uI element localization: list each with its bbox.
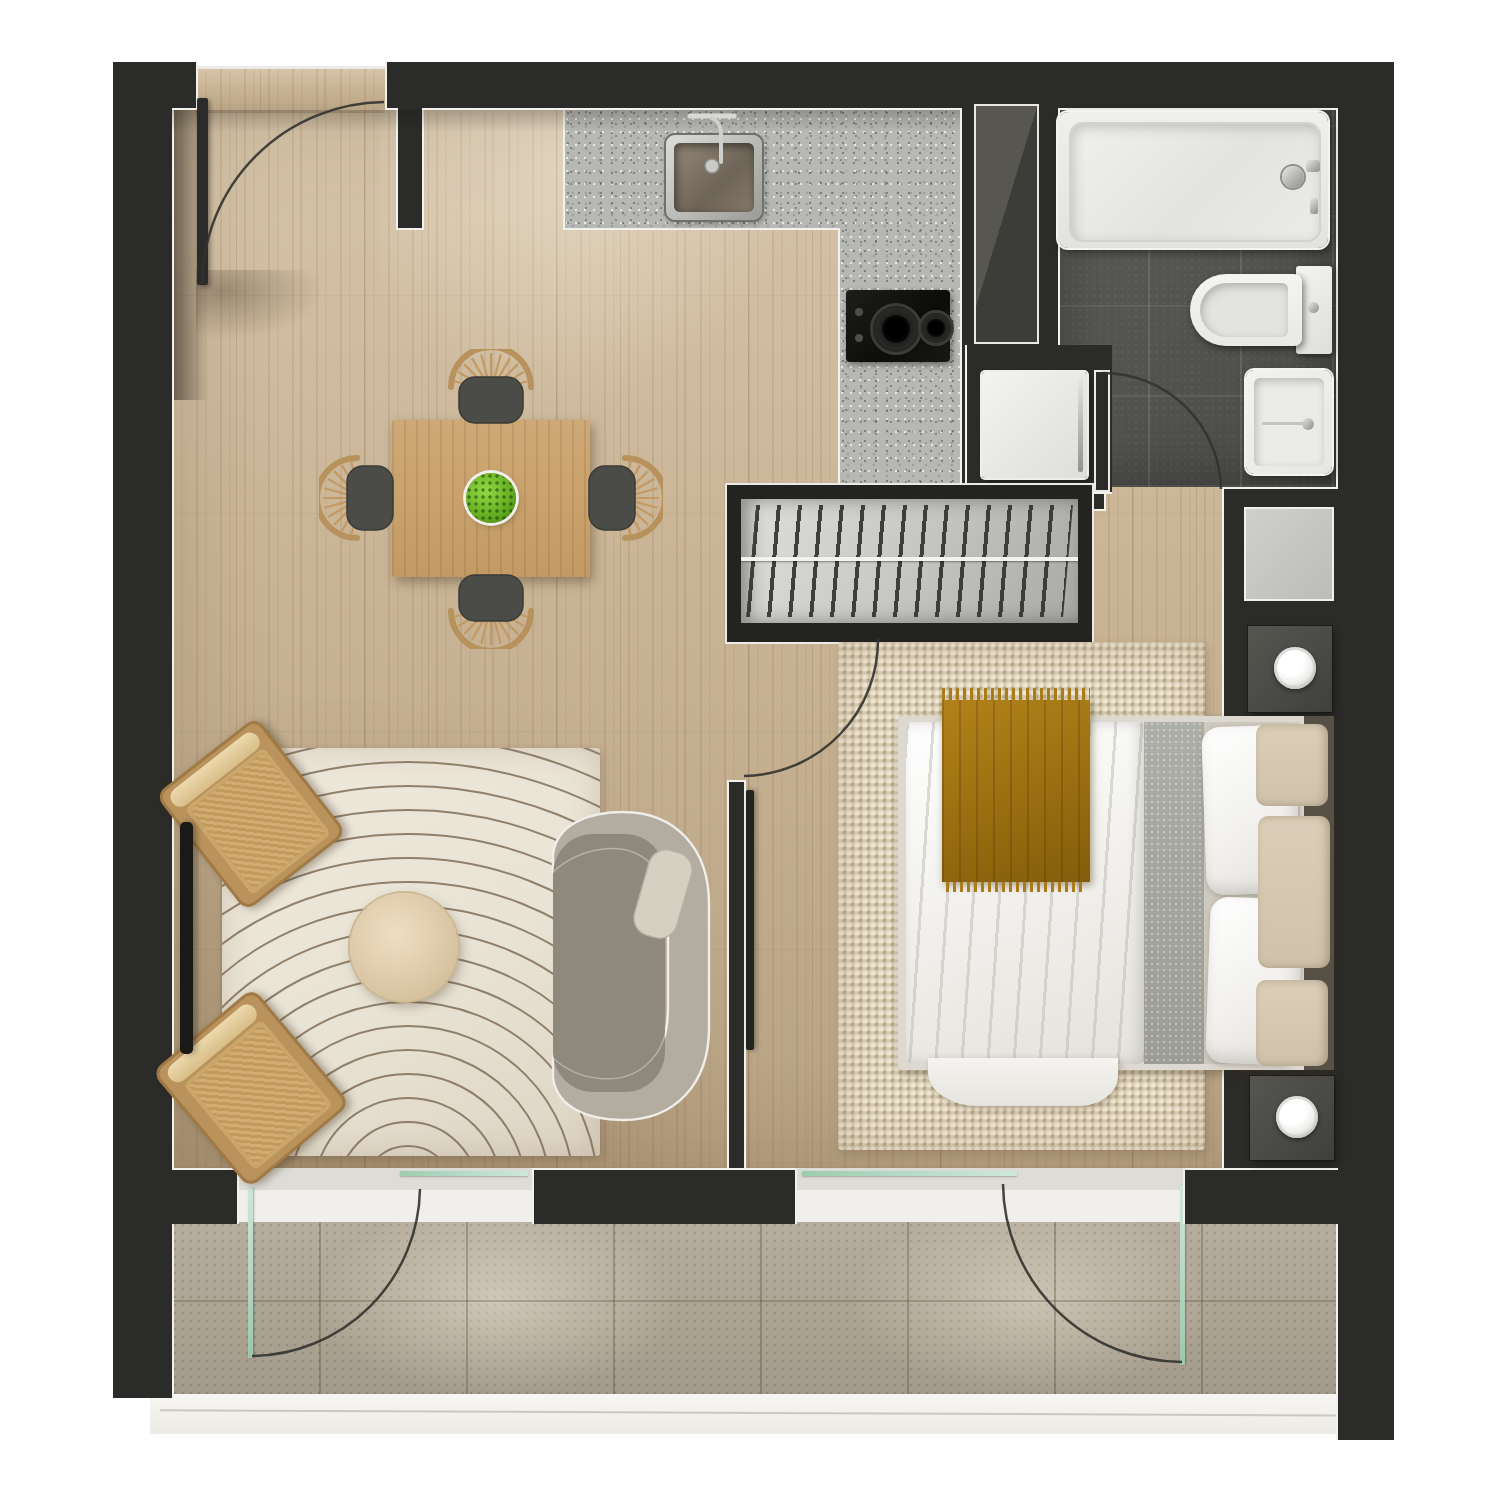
headboard-cushion-2 xyxy=(1258,816,1330,968)
lamp-top-icon xyxy=(1274,647,1316,689)
throw-fringe-bottom xyxy=(946,882,1086,892)
coffee-table xyxy=(350,893,458,1001)
tub-handle-icon xyxy=(1310,198,1318,214)
plant-centerpiece xyxy=(466,473,516,523)
glass-fixed-bedroom xyxy=(802,1171,1017,1176)
tub-faucet-icon xyxy=(1306,160,1320,172)
burner-small-icon xyxy=(918,310,954,346)
wardrobe-rail xyxy=(741,557,1078,561)
sink xyxy=(666,135,762,220)
tall-cabinet-fridge xyxy=(976,106,1037,342)
sofa xyxy=(545,806,715,1126)
toilet-bowl xyxy=(1190,274,1302,346)
toilet xyxy=(1190,264,1332,354)
bed-blanket-gray xyxy=(1144,722,1206,1064)
sink-basin xyxy=(674,143,754,212)
headboard-cushion-3 xyxy=(1256,980,1328,1066)
burner-large-icon xyxy=(870,303,922,355)
cooktop xyxy=(846,290,950,362)
top-wall-shadow xyxy=(172,110,960,132)
dining-chair-bottom xyxy=(441,571,541,649)
wall-bottom-a xyxy=(172,1168,239,1224)
wardrobe-interior xyxy=(741,499,1078,623)
wardrobe xyxy=(727,485,1092,642)
bed-sheet-spill xyxy=(928,1058,1118,1106)
nightstand-bottom xyxy=(1250,1076,1334,1160)
wall-top-main xyxy=(385,62,1394,110)
dining-chair-left xyxy=(319,448,397,548)
glass-fixed-living xyxy=(400,1171,528,1176)
balcony-floor xyxy=(172,1222,1336,1394)
glass-door-leaf-living xyxy=(248,1188,253,1358)
wall-bottom-c xyxy=(1183,1168,1338,1224)
wall-top-left-block xyxy=(113,62,198,110)
flush-button-icon xyxy=(1308,302,1319,313)
toilet-bowl-inner xyxy=(1200,283,1288,337)
tv xyxy=(180,822,193,1054)
washing-machine xyxy=(982,372,1087,478)
entry-threshold-floor xyxy=(196,66,385,113)
wall-partition-bedroom xyxy=(727,780,746,1172)
balcony-tile-joint xyxy=(172,1300,1336,1302)
bedroom-door-leaf xyxy=(746,790,754,1050)
headboard-cushion-1 xyxy=(1256,724,1328,806)
entry-door-shadow xyxy=(196,270,326,340)
washbasin xyxy=(1246,370,1332,474)
wardrobe-hangers xyxy=(746,505,1073,617)
floor-plan-canvas xyxy=(0,0,1500,1500)
cooktop-knob xyxy=(855,308,863,316)
tub-drain-icon xyxy=(1282,166,1304,188)
wall-bottom-b xyxy=(532,1168,797,1224)
sill-bedroom-window xyxy=(793,1168,1183,1222)
throw-fringe-top xyxy=(942,688,1090,700)
dining-chair-top xyxy=(441,349,541,427)
nightstand-top xyxy=(1248,626,1332,712)
bathtub xyxy=(1058,112,1328,248)
cooktop-knob xyxy=(855,334,863,342)
lamp-bottom-icon xyxy=(1276,1096,1318,1138)
dining-chair-right xyxy=(585,448,663,548)
wall-left xyxy=(113,108,174,1398)
bathroom-door-leaf xyxy=(1096,372,1108,490)
washer-hinge xyxy=(1078,378,1083,472)
basin-spout-icon xyxy=(1262,422,1306,425)
wall-right xyxy=(1336,108,1394,1440)
entry-door-leaf xyxy=(197,98,208,285)
sill-living-window xyxy=(237,1168,532,1222)
throw-blanket xyxy=(942,700,1090,882)
shelf-niche xyxy=(1246,509,1332,599)
